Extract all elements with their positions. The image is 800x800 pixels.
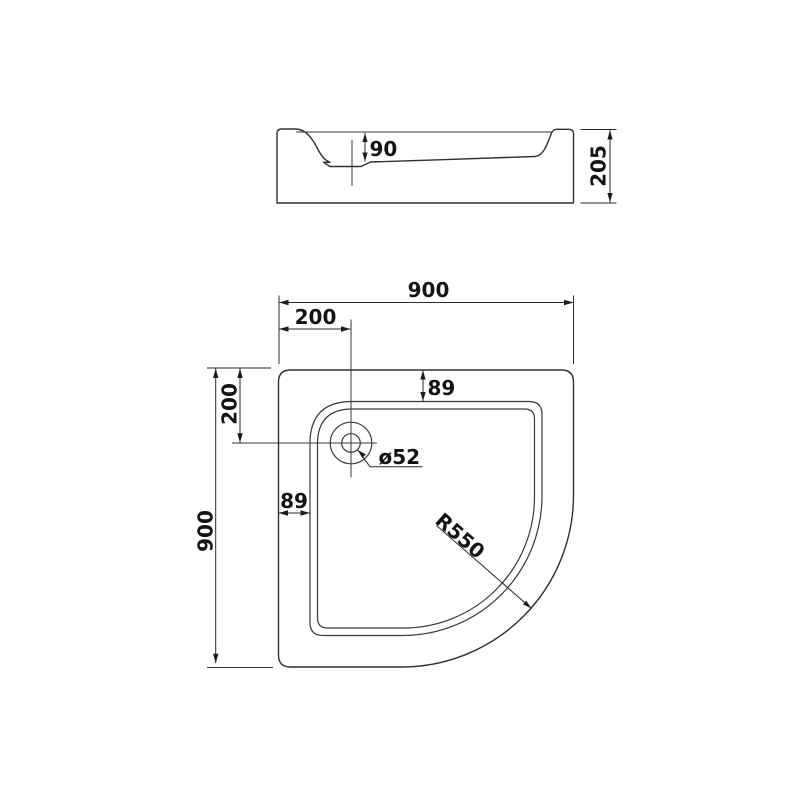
arrowhead-down: [237, 433, 242, 443]
dim-label-drain-offset-left: 200: [295, 305, 337, 329]
dim-basin-depth: 90: [362, 133, 397, 162]
arrowhead-right: [341, 326, 351, 331]
shower-tray-drawing: 90 205 900: [0, 0, 800, 800]
plan-view: 900 200 89 900 200: [194, 278, 574, 668]
arrowhead-down: [213, 654, 218, 664]
floor-edge-line: [318, 409, 535, 628]
arrowhead-up: [237, 369, 242, 379]
arrowhead-up: [607, 130, 612, 140]
dim-label-corner-radius: R550: [431, 508, 490, 564]
dim-drain-offset-top: 200: [218, 369, 243, 443]
technical-drawing-page: 90 205 900: [0, 0, 800, 800]
arrowhead-down: [420, 392, 425, 401]
dim-label-overall-depth: 900: [194, 510, 218, 552]
dim-corner-radius: R550: [431, 508, 532, 609]
dim-drain-diameter: ø52: [358, 445, 423, 469]
arrowhead-down: [362, 153, 367, 162]
arrowhead-left: [279, 300, 289, 305]
arrowhead-leader: [358, 450, 366, 458]
dim-drain-offset-left: 200: [279, 305, 351, 332]
arrowhead-left: [279, 326, 289, 331]
dim-label-drain-diameter: ø52: [379, 445, 421, 469]
plan-outer-outline: [279, 370, 574, 667]
arrowhead-up: [420, 371, 425, 380]
dim-overall-height-side: 205: [581, 130, 617, 204]
dim-label-drain-offset-top: 200: [218, 383, 242, 425]
dim-label-overall-height: 205: [587, 145, 611, 187]
side-profile-outline: [277, 129, 574, 203]
arrowhead-right: [564, 300, 574, 305]
dim-label-rim-width-left: 89: [280, 489, 308, 513]
arrowhead-down: [607, 193, 612, 203]
side-view: 90 205: [277, 129, 617, 203]
arrowhead-up: [213, 369, 218, 379]
arrowhead-up: [362, 133, 367, 142]
dim-rim-width-top: 89: [420, 370, 455, 402]
dim-label-rim-width-top: 89: [428, 376, 456, 400]
dim-label-basin-depth: 90: [370, 137, 398, 161]
dim-rim-width-left: 89: [279, 489, 311, 516]
dim-label-overall-width: 900: [408, 278, 450, 302]
